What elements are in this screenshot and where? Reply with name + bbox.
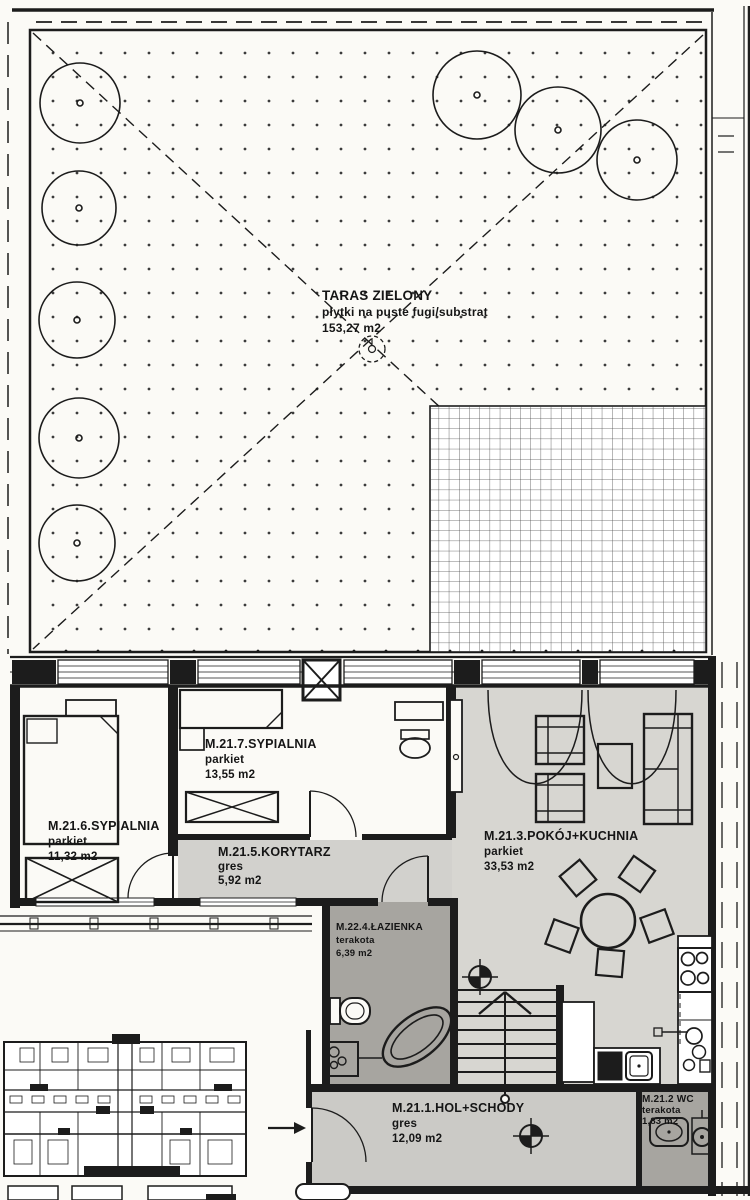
terrace-tiled-zone <box>430 406 706 652</box>
room-label-wc-id: M.21.2 WC <box>642 1094 694 1105</box>
room-label-pokoj-kuchnia-id: M.21.3.POKÓJ+KUCHNIA <box>484 828 638 843</box>
room-label-sypialnia-21-6-finish: parkiet <box>48 836 87 848</box>
wall-hol-north <box>310 1084 712 1092</box>
room-label-lazienka-id: M.22.4.ŁAZIENKA <box>336 922 423 933</box>
window-icon <box>200 898 296 906</box>
terrace-label-finish: płytki na puste fugi/substrat <box>322 305 488 319</box>
room-label-sypialnia-21-6-id: M.21.6.SYPIALNIA <box>48 819 160 833</box>
wall-corridor-north-b <box>362 834 452 840</box>
toilet-icon <box>330 998 370 1024</box>
terrace-label-name: TARAS ZIELONY <box>322 288 432 303</box>
desk-chair-icon <box>395 702 443 758</box>
terrace-label-area: 153,27 m2 <box>322 321 381 335</box>
nightstand-icon <box>180 728 204 750</box>
tall-door-leaf-icon <box>450 700 462 792</box>
window-icon <box>600 660 694 684</box>
room-label-hol-finish: gres <box>392 1118 417 1130</box>
dishwasher-icon <box>598 1052 622 1080</box>
window-icon <box>58 660 168 684</box>
room-label-sypialnia-21-7-finish: parkiet <box>205 754 244 766</box>
wardrobe-icon <box>186 792 278 822</box>
room-label-sypialnia-21-7-area: 13,55 m2 <box>205 769 255 781</box>
door-swing-icon <box>310 791 356 837</box>
door-swing-icon <box>128 853 173 898</box>
wall-bath-east <box>450 898 458 1090</box>
room-label-sypialnia-21-7-id: M.21.7.SYPIALNIA <box>205 737 317 751</box>
bed-icon <box>180 690 282 728</box>
wall-right-exterior <box>708 656 716 1196</box>
room-label-pokoj-kuchnia-finish: parkiet <box>484 846 523 858</box>
room-label-hol-id: M.21.1.HOL+SCHODY <box>392 1101 525 1115</box>
room-label-korytarz-id: M.21.5.KORYTARZ <box>218 845 331 859</box>
room-label-korytarz-area: 5,92 m2 <box>218 875 262 887</box>
wall-left-exterior <box>10 686 20 908</box>
nightstand-icon <box>66 700 116 716</box>
floor-plan-sheet: TARAS ZIELONY płytki na puste fugi/subst… <box>0 0 750 1200</box>
room-label-lazienka-area: 6,39 m2 <box>336 948 372 959</box>
room-label-korytarz-finish: gres <box>218 861 243 873</box>
room-label-sypialnia-21-6-area: 11,32 m2 <box>48 851 98 863</box>
wall-hol-west-a <box>306 1088 312 1108</box>
wall-bath-north-a <box>322 898 378 906</box>
entrance-arrow-icon <box>268 1122 306 1134</box>
room-label-wc-finish: terakota <box>642 1105 681 1116</box>
wardrobe-icon <box>26 858 118 902</box>
room-label-lazienka-finish: terakota <box>336 935 375 946</box>
room-label-hol-area: 12,09 m2 <box>392 1133 442 1145</box>
wall-corridor-north-a <box>172 834 310 840</box>
wall-between-bedrooms <box>168 686 178 856</box>
window-icon <box>344 660 452 684</box>
fridge-cabinet-icon <box>562 1002 594 1082</box>
floor-plan-drawing: TARAS ZIELONY płytki na puste fugi/subst… <box>0 0 750 1200</box>
vent-shaft-icon <box>303 660 340 700</box>
window-icon <box>198 660 300 684</box>
wall-stub-west <box>306 1030 311 1088</box>
window-icon <box>482 660 580 684</box>
room-label-pokoj-kuchnia-area: 33,53 m2 <box>484 861 534 873</box>
room-sypialnia-21-6 <box>24 700 118 902</box>
key-plan-miniature <box>4 1034 350 1200</box>
room-label-wc-area: 1,83 m2 <box>642 1116 678 1127</box>
wall-hol-south <box>310 1186 750 1194</box>
